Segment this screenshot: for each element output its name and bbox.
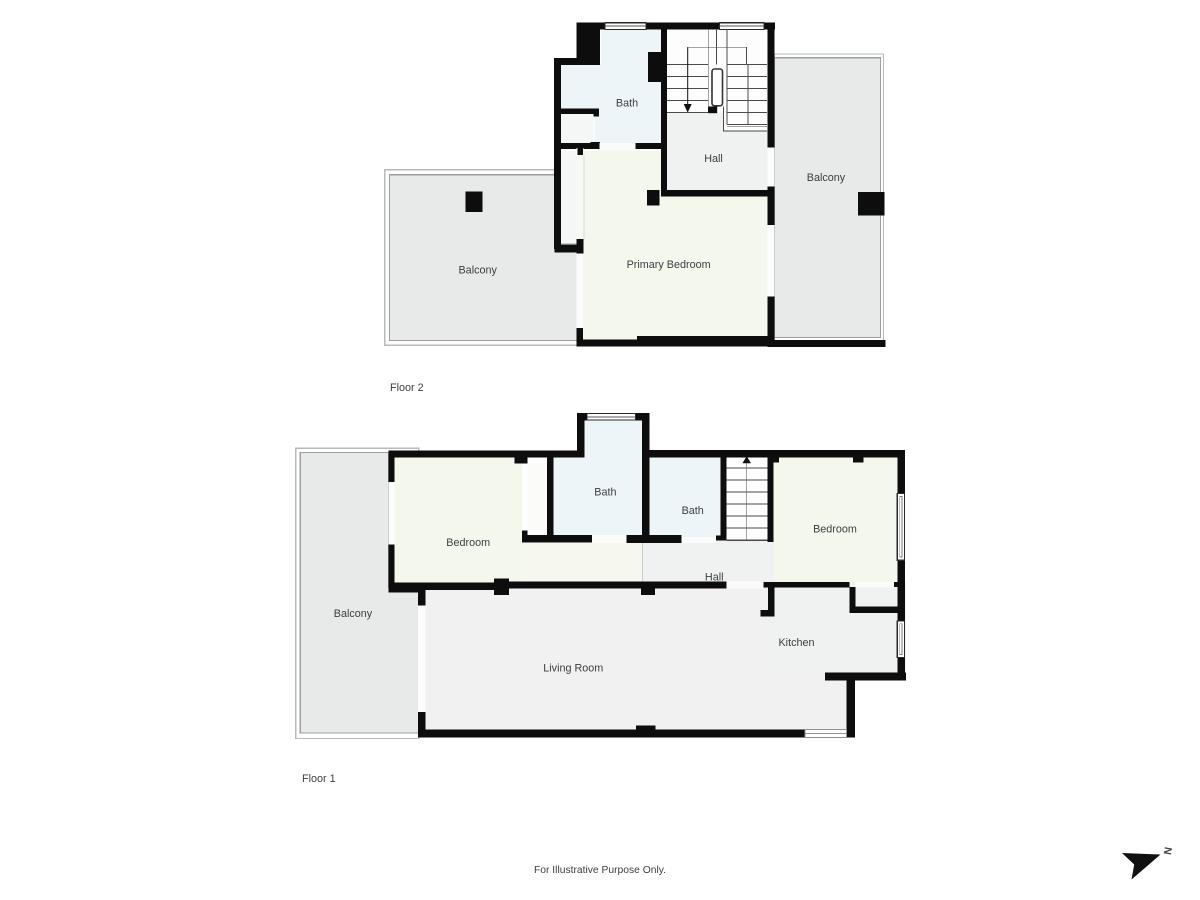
svg-text:Bath: Bath xyxy=(616,97,638,109)
svg-text:Floor 2: Floor 2 xyxy=(390,382,424,394)
svg-text:Floor 1: Floor 1 xyxy=(302,773,336,785)
svg-text:Bath: Bath xyxy=(594,486,616,498)
svg-text:Living Room: Living Room xyxy=(543,663,603,675)
svg-text:Balcony: Balcony xyxy=(458,265,497,277)
svg-text:Primary Bedroom: Primary Bedroom xyxy=(627,259,711,271)
svg-text:Bedroom: Bedroom xyxy=(813,523,857,535)
svg-text:Bedroom: Bedroom xyxy=(446,537,490,549)
svg-text:Balcony: Balcony xyxy=(334,608,373,620)
svg-text:For Illustrative Purpose Only.: For Illustrative Purpose Only. xyxy=(534,865,666,876)
svg-text:Bath: Bath xyxy=(682,505,704,517)
svg-text:Balcony: Balcony xyxy=(807,172,846,184)
svg-text:Hall: Hall xyxy=(705,571,724,583)
svg-text:Hall: Hall xyxy=(704,153,723,165)
svg-text:Kitchen: Kitchen xyxy=(778,637,814,649)
